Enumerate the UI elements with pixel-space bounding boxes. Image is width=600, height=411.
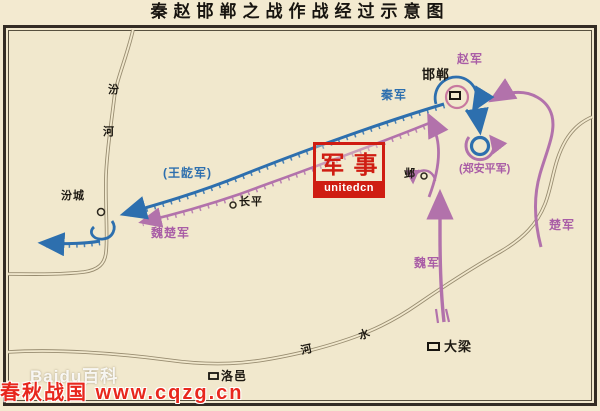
fen-river-label-1: 汾 — [108, 85, 119, 96]
city-label-changping: 长平 — [239, 197, 263, 208]
city-label-daliang: 大梁 — [444, 340, 472, 353]
daliang-city-marker — [428, 343, 439, 350]
ye-to-handan-arrow — [429, 116, 439, 197]
he-river-label-1: 河 — [300, 344, 313, 357]
city-label-handan: 邯郸 — [422, 68, 450, 81]
city-label-ye: 邺 — [404, 169, 416, 180]
city-label-luoyi: 洛邑 — [221, 370, 247, 382]
city-label-fencheng: 汾城 — [61, 191, 85, 202]
army-label-weichu: 魏楚军 — [151, 227, 190, 239]
qin-west-arrow — [42, 241, 100, 244]
army-label-qin: 秦军 — [381, 89, 407, 101]
handan-city-marker — [450, 92, 460, 99]
zhenganping-move-arrow — [466, 110, 480, 131]
unitedcn-seal-characters: 军 事 — [316, 146, 382, 178]
battle-map-canvas: 秦赵邯郸之战作战经过示意图 — [0, 0, 600, 411]
cqzg-watermark: 春秋战国 www.cqzg.cn — [0, 383, 244, 403]
fen-river-label-2: 河 — [103, 127, 114, 138]
army-label-zhao: 赵军 — [457, 53, 483, 65]
ye-town-marker — [421, 173, 427, 179]
ye-encircle-arc — [413, 170, 435, 182]
fen-river — [8, 30, 133, 274]
changping-town-marker — [230, 202, 236, 208]
wei-army-arrow — [440, 194, 444, 322]
zhenganping-force-circle — [472, 138, 489, 155]
qin-retreat-arrow — [124, 104, 444, 214]
fencheng-town-marker — [98, 209, 105, 216]
unitedcn-watermark: 军 事 unitedcn — [313, 142, 385, 198]
army-label-chu: 楚军 — [549, 219, 575, 231]
fencheng-loop — [91, 221, 114, 239]
luoyi-city-marker — [209, 373, 218, 379]
seal-char-jun: 军 — [321, 145, 345, 180]
seal-char-shi: 事 — [354, 145, 378, 180]
unitedcn-domain-band: unitedcn — [316, 181, 382, 195]
army-label-zhenganping: (郑安平军) — [459, 164, 510, 175]
army-label-wanghe: (王龁军) — [163, 167, 212, 179]
army-label-wei: 魏军 — [414, 257, 440, 269]
